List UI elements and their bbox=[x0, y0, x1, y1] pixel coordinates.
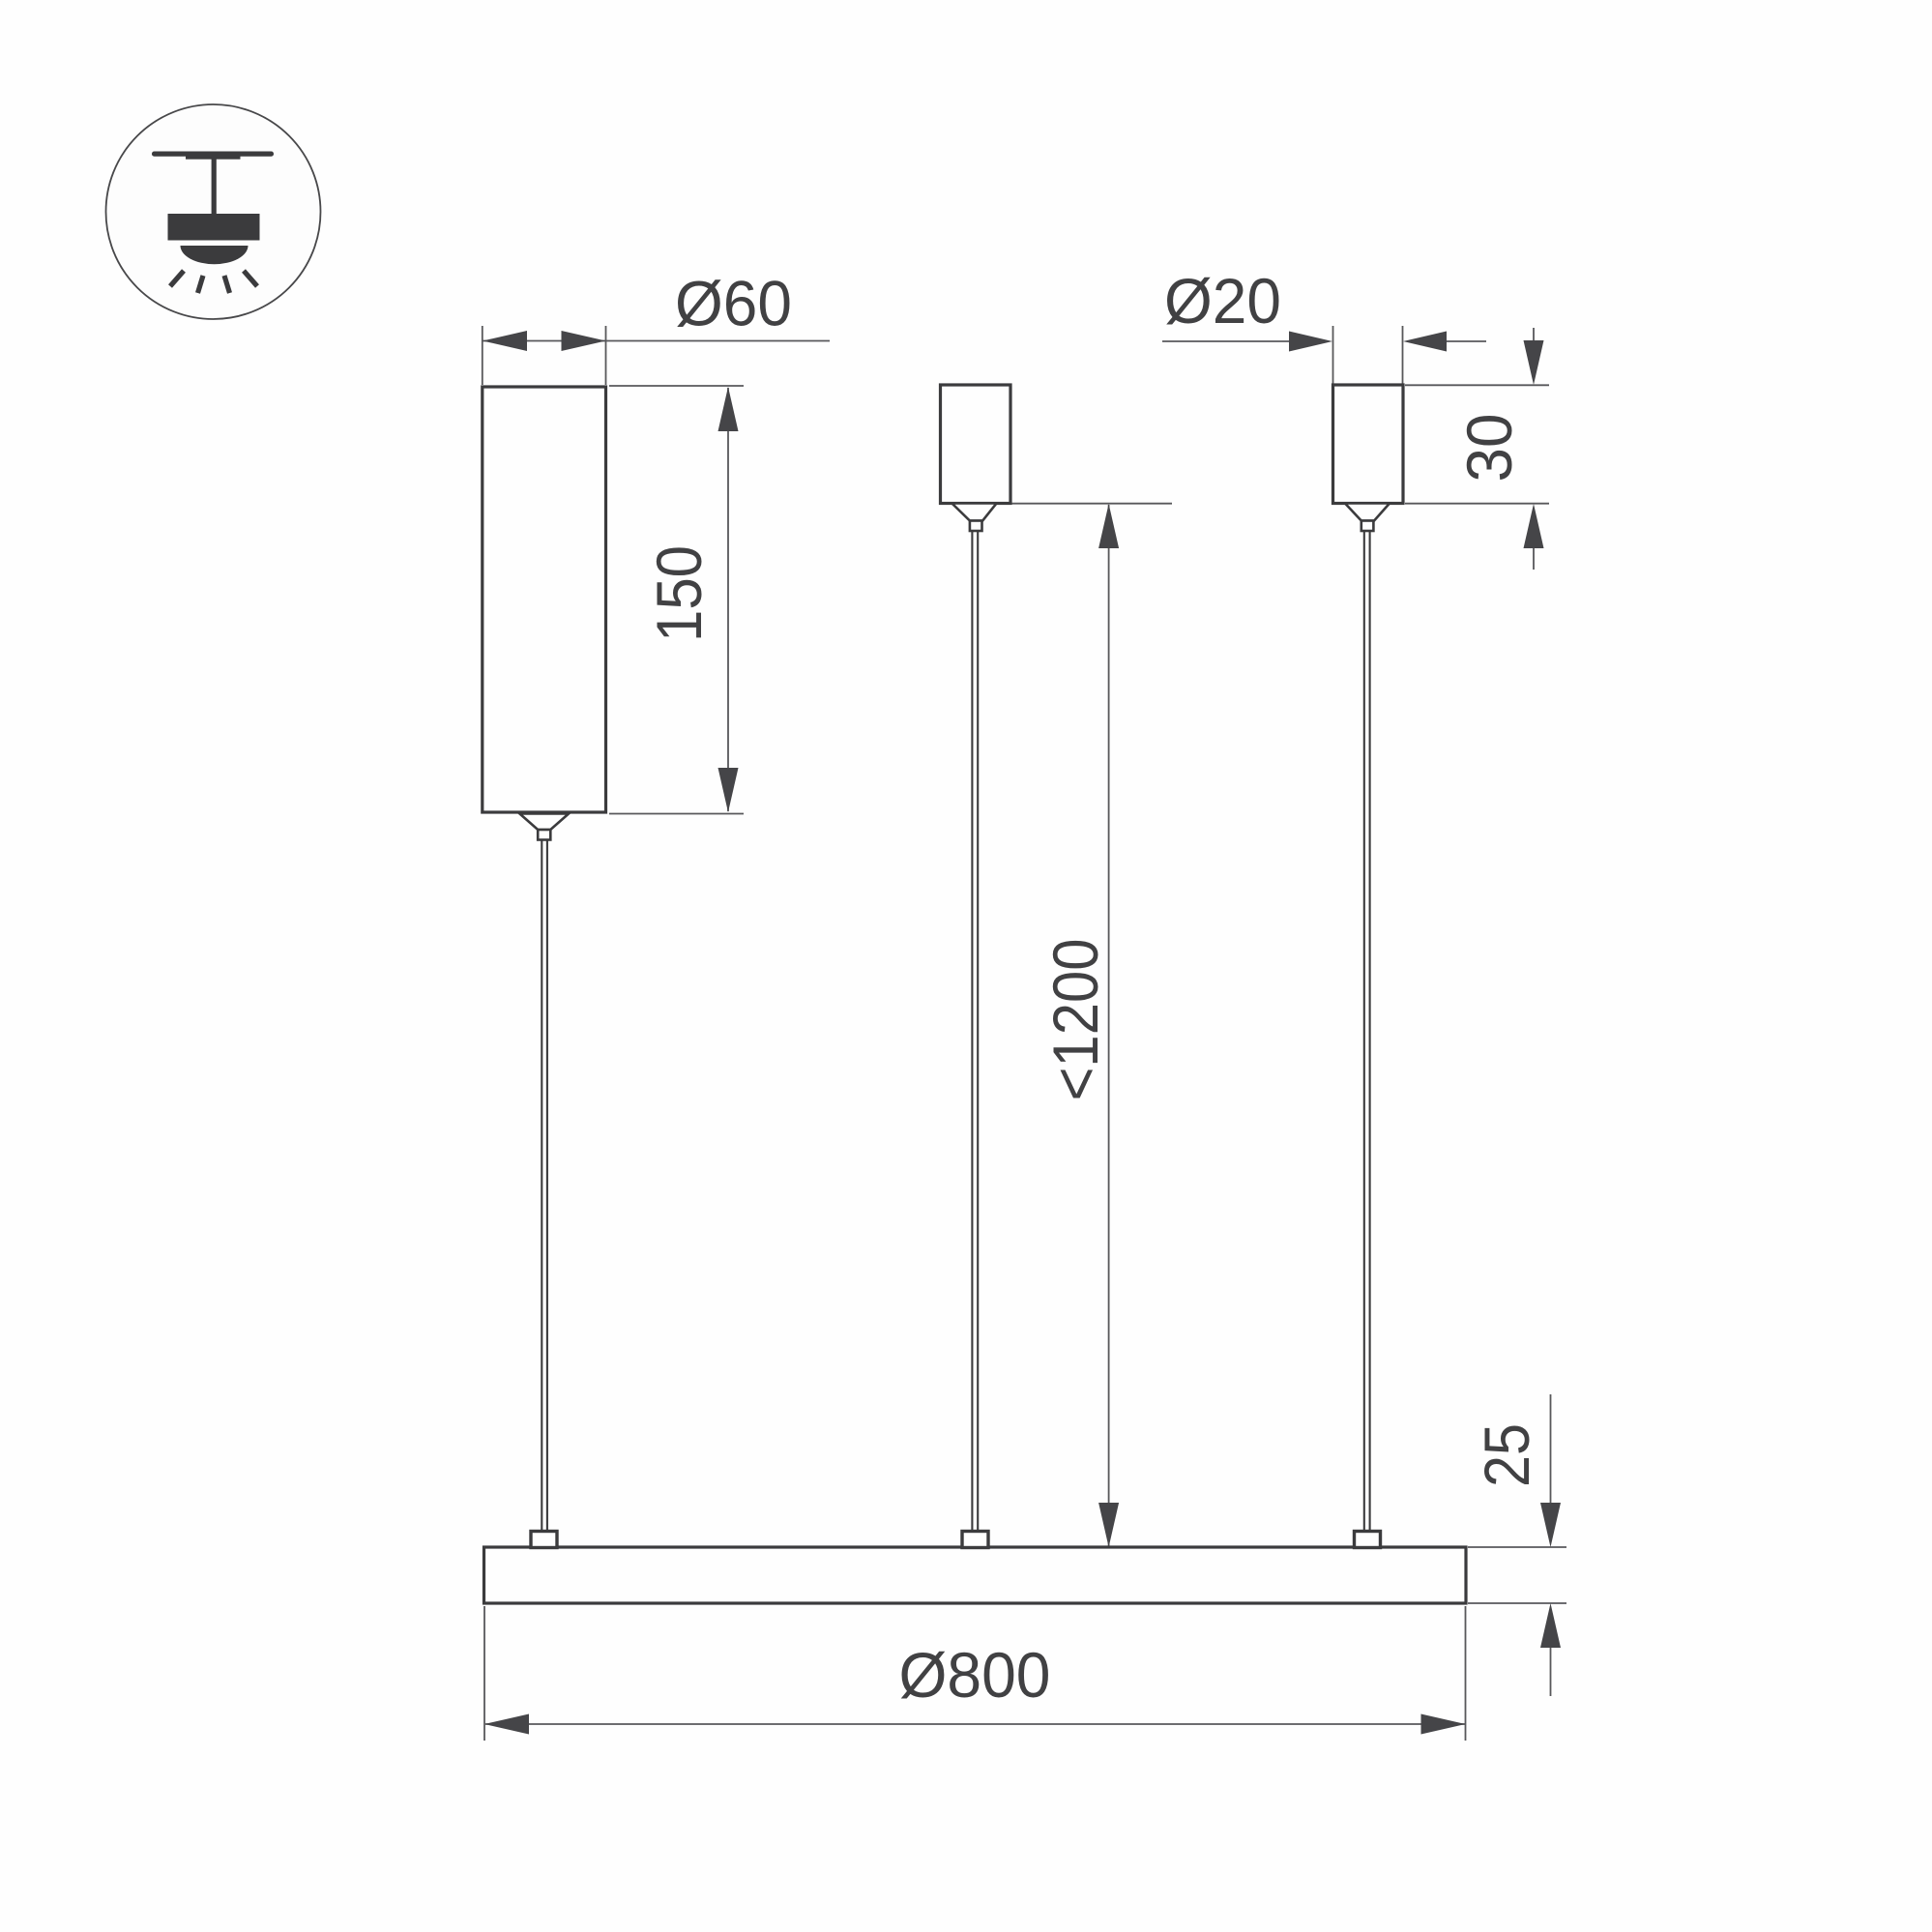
svg-text:Ø800: Ø800 bbox=[899, 1639, 1051, 1711]
svg-text:Ø60: Ø60 bbox=[675, 268, 792, 339]
svg-text:<1200: <1200 bbox=[1039, 939, 1111, 1101]
svg-text:30: 30 bbox=[1453, 414, 1525, 483]
svg-text:Ø20: Ø20 bbox=[1164, 265, 1281, 337]
svg-text:25: 25 bbox=[1471, 1423, 1542, 1487]
svg-text:150: 150 bbox=[643, 545, 715, 642]
